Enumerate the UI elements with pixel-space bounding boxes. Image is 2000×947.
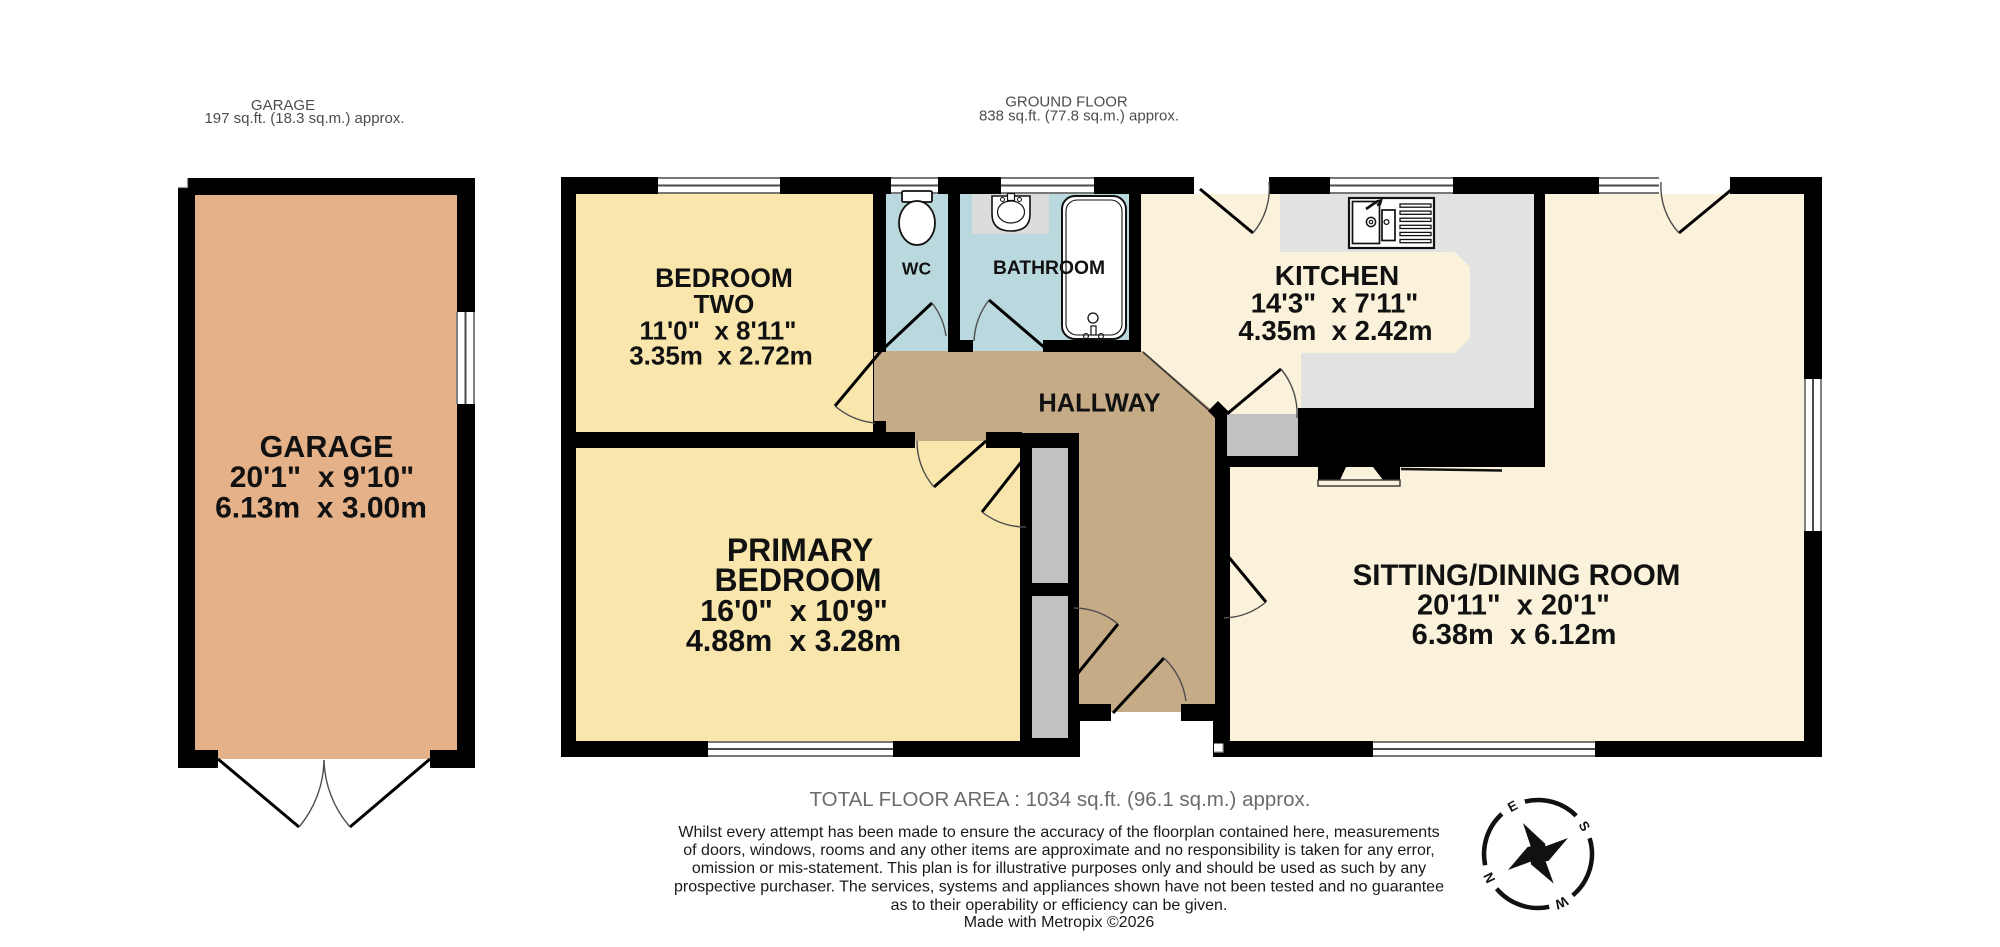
svg-text:HALLWAY: HALLWAY [1038, 390, 1160, 418]
svg-text:16'0" x 10'9": 16'0" x 10'9" [700, 594, 888, 628]
svg-text:of doors, windows, rooms and a: of doors, windows, rooms and any other i… [683, 842, 1434, 859]
svg-text:3.35m x 2.72m: 3.35m x 2.72m [629, 341, 813, 371]
svg-text:838 sq.ft. (77.8 sq.m.) approx: 838 sq.ft. (77.8 sq.m.) approx. [979, 108, 1179, 125]
svg-text:SITTING/DINING ROOM: SITTING/DINING ROOM [1353, 559, 1681, 592]
svg-text:TWO: TWO [694, 289, 755, 319]
svg-text:BEDROOM: BEDROOM [714, 562, 881, 598]
svg-text:4.88m x 3.28m: 4.88m x 3.28m [686, 624, 901, 658]
svg-text:prospective purchaser. The ser: prospective purchaser. The services, sys… [674, 879, 1444, 896]
svg-text:Whilst every attempt has been: Whilst every attempt has been made to en… [678, 824, 1439, 841]
svg-text:6.13m x 3.00m: 6.13m x 3.00m [215, 492, 427, 525]
svg-text:20'1" x 9'10": 20'1" x 9'10" [230, 461, 415, 494]
svg-text:omission or mis-statement. Thi: omission or mis-statement. This plan is … [692, 860, 1426, 877]
svg-text:4.35m x 2.42m: 4.35m x 2.42m [1238, 315, 1432, 346]
svg-text:20'11" x 20'1": 20'11" x 20'1" [1417, 590, 1610, 622]
svg-text:Made with Metropix ©2026: Made with Metropix ©2026 [964, 914, 1155, 931]
svg-text:GARAGE: GARAGE [260, 430, 394, 464]
svg-text:197 sq.ft. (18.3 sq.m.) approx: 197 sq.ft. (18.3 sq.m.) approx. [204, 110, 404, 127]
svg-text:6.38m x 6.12m: 6.38m x 6.12m [1412, 619, 1617, 651]
svg-text:14'3" x 7'11": 14'3" x 7'11" [1251, 288, 1419, 319]
svg-text:TOTAL FLOOR AREA : 1034 sq.ft.: TOTAL FLOOR AREA : 1034 sq.ft. (96.1 sq.… [810, 788, 1311, 811]
svg-text:BATHROOM: BATHROOM [993, 258, 1105, 279]
svg-text:as to their operability or eff: as to their operability or efficiency ca… [891, 897, 1228, 914]
svg-text:WC: WC [902, 259, 932, 279]
svg-text:KITCHEN: KITCHEN [1275, 260, 1399, 291]
